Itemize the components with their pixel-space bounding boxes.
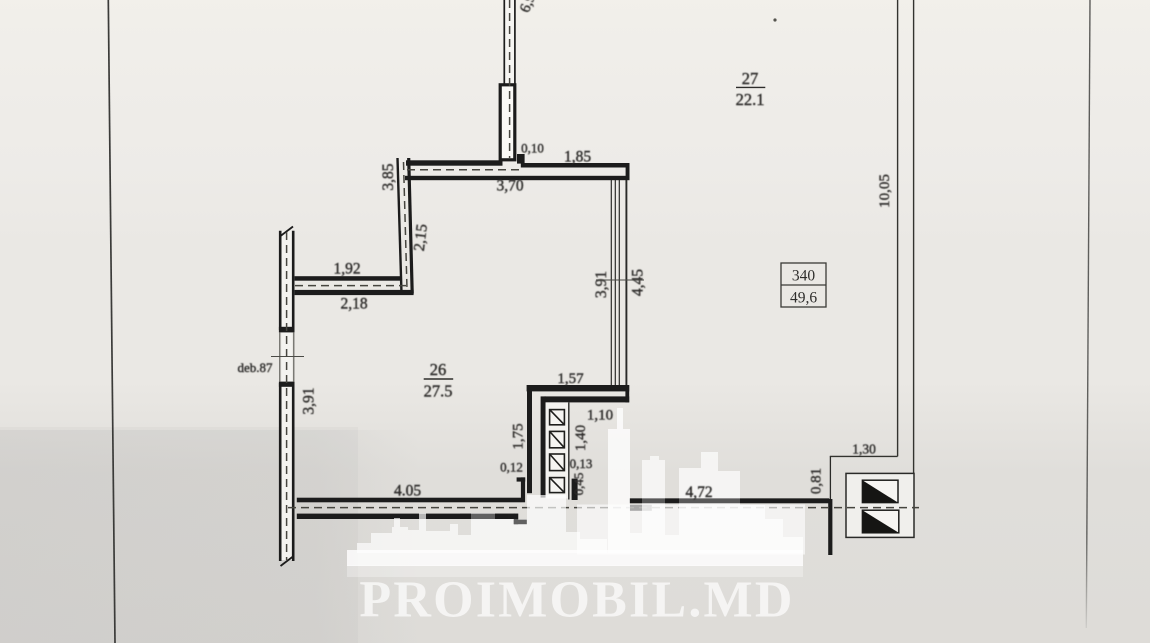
svg-text:4,72: 4,72: [685, 484, 712, 501]
svg-text:0,13: 0,13: [570, 456, 593, 471]
svg-text:3,85: 3,85: [380, 163, 397, 190]
svg-text:27.5: 27.5: [424, 382, 453, 401]
svg-text:22.1: 22.1: [736, 90, 765, 109]
svg-text:26: 26: [430, 360, 447, 379]
svg-text:0,81: 0,81: [809, 468, 825, 494]
svg-text:3,91: 3,91: [300, 387, 317, 414]
svg-text:1,92: 1,92: [333, 260, 360, 277]
svg-text:0,12: 0,12: [500, 460, 523, 475]
svg-text:4,45: 4,45: [629, 269, 646, 296]
svg-text:3,91: 3,91: [593, 271, 610, 298]
svg-text:1,85: 1,85: [564, 149, 591, 166]
svg-text:1,57: 1,57: [557, 371, 584, 387]
svg-text:0,45: 0,45: [571, 473, 586, 496]
svg-text:deb.87: deb.87: [237, 360, 273, 375]
svg-text:340: 340: [792, 268, 816, 285]
svg-text:PROIMOBIL.MD: PROIMOBIL.MD: [359, 572, 794, 629]
svg-text:0,10: 0,10: [521, 141, 544, 156]
svg-text:1,75: 1,75: [511, 423, 527, 449]
svg-text:2,18: 2,18: [340, 295, 367, 312]
svg-text:1,10: 1,10: [587, 407, 613, 423]
svg-text:49,6: 49,6: [790, 290, 817, 307]
svg-text:1,40: 1,40: [573, 425, 589, 451]
svg-text:1,30: 1,30: [852, 442, 876, 457]
svg-text:3,70: 3,70: [496, 178, 523, 195]
svg-text:2,15: 2,15: [411, 223, 431, 252]
svg-text:27: 27: [742, 69, 759, 88]
svg-text:10,05: 10,05: [877, 174, 893, 208]
svg-text:4.05: 4.05: [394, 482, 421, 499]
